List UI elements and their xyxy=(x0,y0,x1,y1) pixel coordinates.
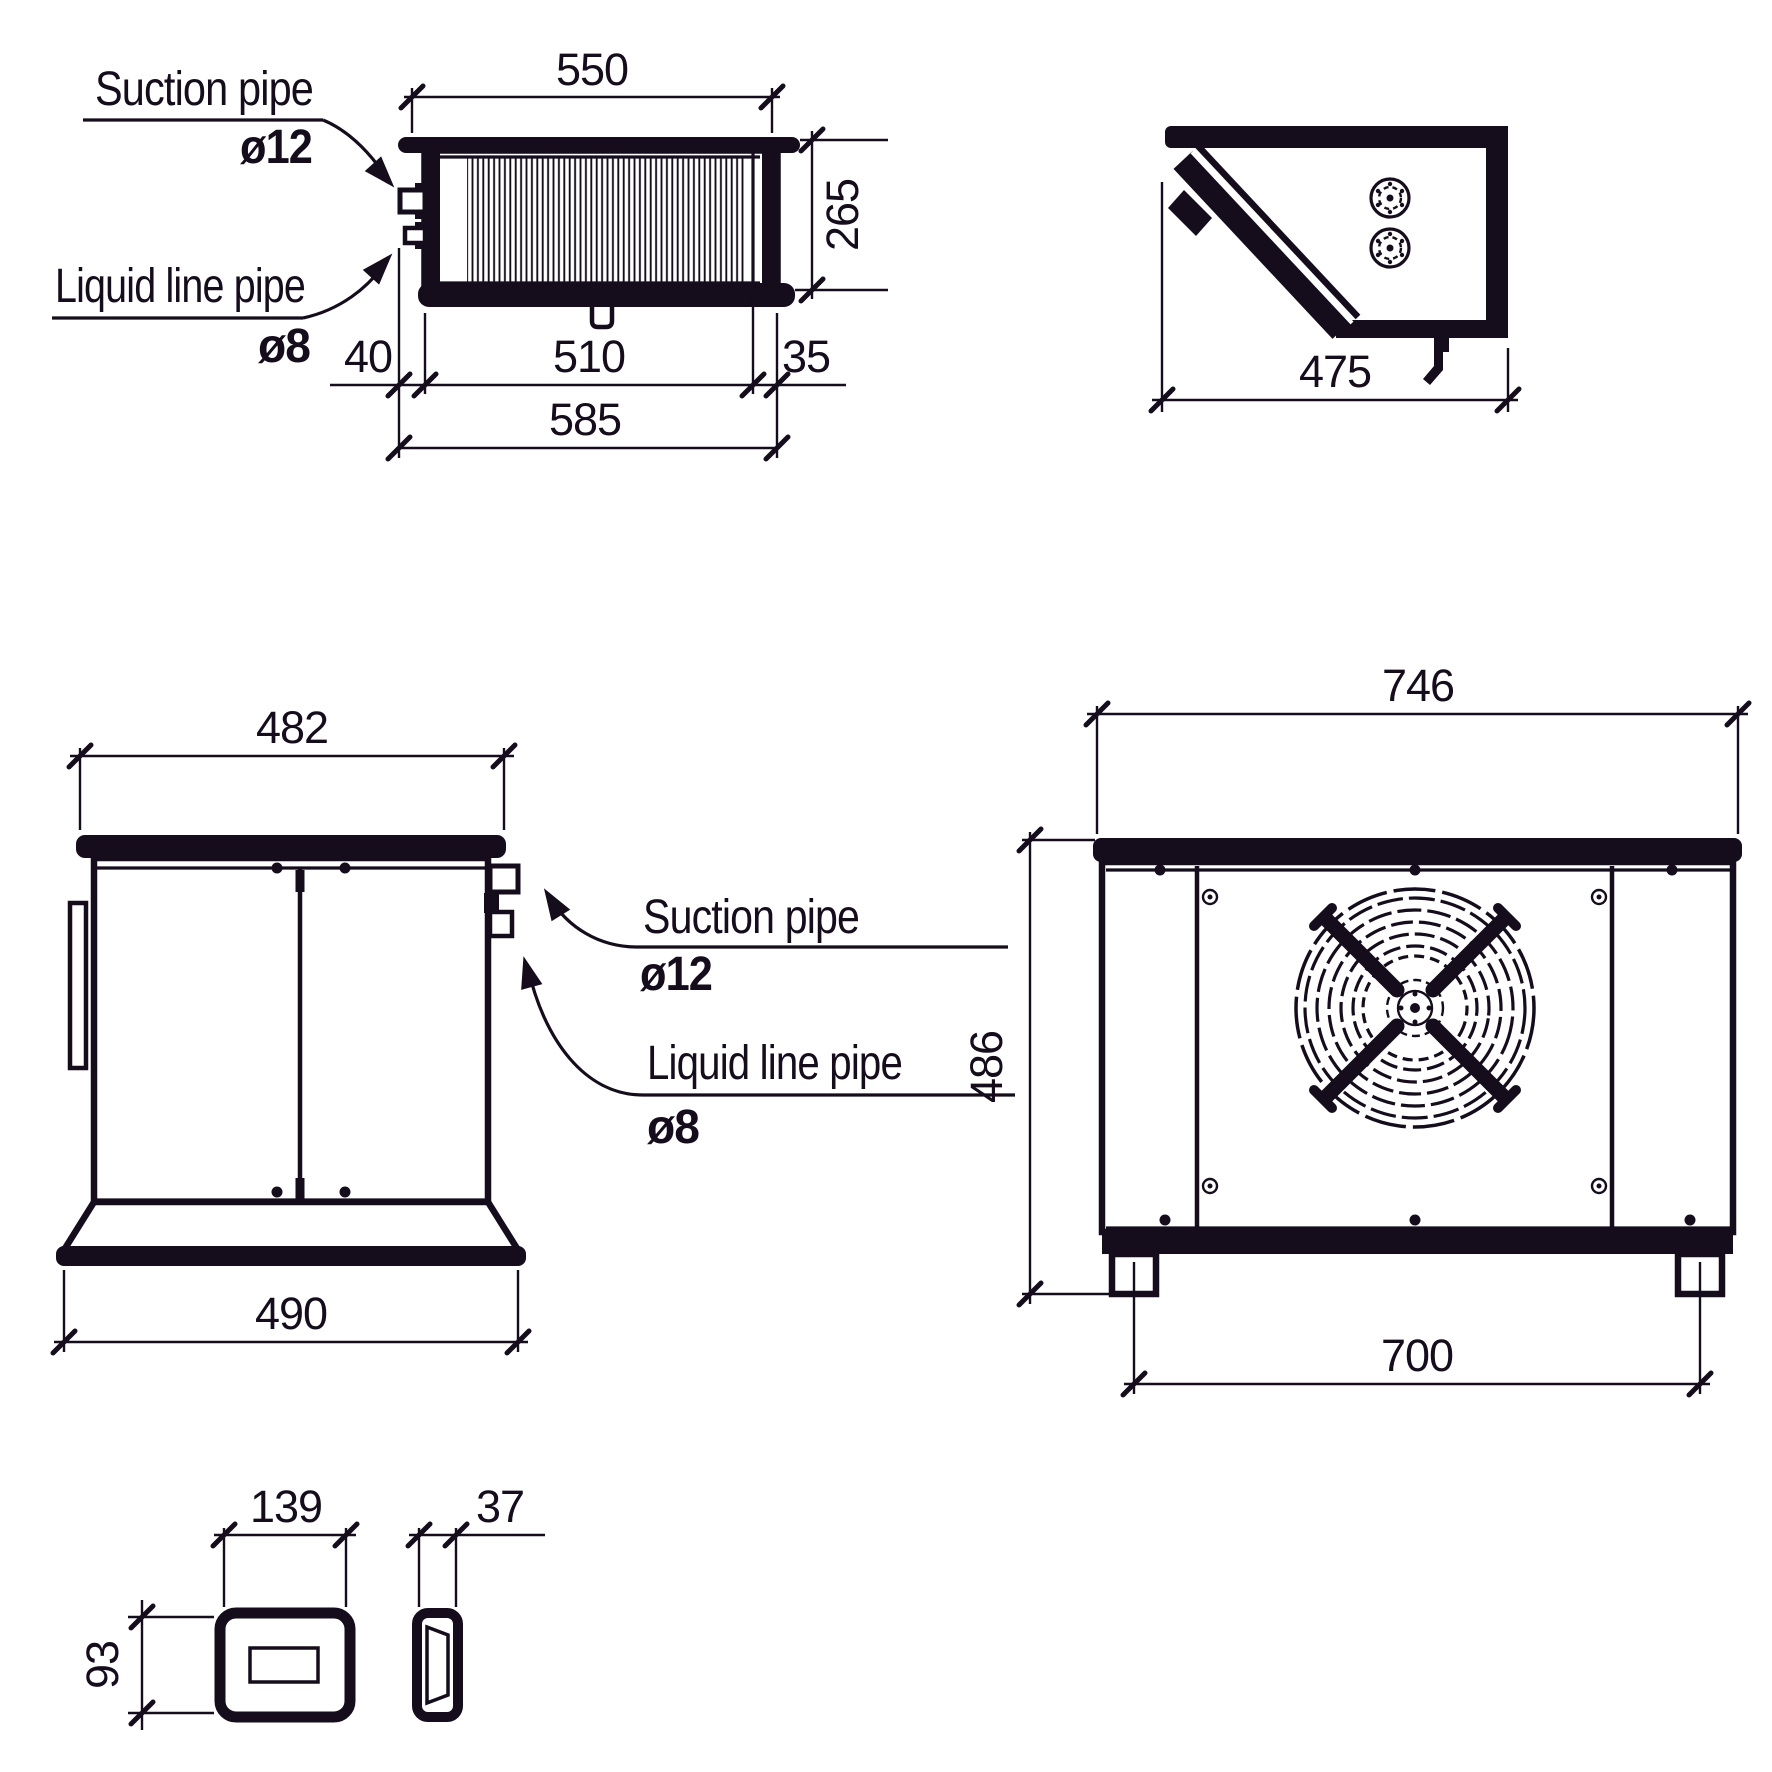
dim-510-label: 510 xyxy=(553,331,625,382)
controller-dim-93: 93 xyxy=(77,1600,214,1730)
controller-front-unit xyxy=(220,1613,350,1717)
dim-37-label: 37 xyxy=(476,1481,524,1532)
condenser-front-view: 746 486 700 xyxy=(961,660,1749,1395)
dim-482-label: 482 xyxy=(256,702,328,753)
cond-suction-label: Suction pipe xyxy=(643,891,859,944)
cond-side-suction-stub xyxy=(490,866,518,892)
dim-40-label: 40 xyxy=(344,331,392,382)
cond-dim-486: 486 xyxy=(961,829,1110,1305)
evap-dim-550: 550 xyxy=(401,44,783,133)
fan-guard-icon xyxy=(1296,889,1534,1127)
evap-fin-coil xyxy=(467,157,745,283)
cond-side-top-bar xyxy=(76,835,506,858)
cond-side-body xyxy=(94,858,488,1202)
cond-liquid-label: Liquid line pipe xyxy=(647,1037,902,1090)
dim-746-label: 746 xyxy=(1382,660,1454,711)
dim-475-label: 475 xyxy=(1299,346,1371,397)
dim-490-label: 490 xyxy=(255,1288,327,1339)
controller-side-outline xyxy=(417,1613,458,1717)
technical-drawing: Suction pipe ø12 Liquid line pipe ø8 550 xyxy=(0,0,1772,1772)
dim-93-label: 93 xyxy=(77,1641,128,1689)
dim-486-label: 486 xyxy=(961,1031,1012,1103)
evaporator-front-unit xyxy=(398,137,800,327)
evap-dim-265: 265 xyxy=(795,129,888,301)
evaporator-front-view: Suction pipe ø12 Liquid line pipe ø8 550 xyxy=(52,44,888,459)
evap-liquid-dia-label: ø8 xyxy=(258,320,310,373)
controller-side-unit xyxy=(417,1613,458,1717)
cond-side-callouts: Suction pipe ø12 Liquid line pipe ø8 xyxy=(513,882,1015,1154)
controller-display xyxy=(250,1648,318,1682)
condenser-side-unit xyxy=(56,835,526,1266)
evap-suction-stub xyxy=(400,190,425,212)
cond-side-base-plate xyxy=(56,1246,526,1266)
controller-views: 139 37 93 xyxy=(77,1481,545,1730)
evap-suction-arrow-icon xyxy=(365,156,403,195)
dim-585-label: 585 xyxy=(549,394,621,445)
dim-700-label: 700 xyxy=(1381,1330,1453,1381)
controller-front-outline xyxy=(220,1613,350,1717)
cond-side-liquid-stub xyxy=(490,912,512,936)
evap-side-coil-band xyxy=(1183,160,1342,330)
cond-dim-746: 746 xyxy=(1086,660,1749,834)
dim-35-label: 35 xyxy=(782,331,830,382)
condenser-front-unit xyxy=(1093,838,1742,1294)
cond-dim-482: 482 xyxy=(69,702,515,830)
cond-dim-700: 700 xyxy=(1123,1262,1711,1395)
evap-side-bolt-flange-bottom xyxy=(1371,229,1409,267)
evap-side-bottom xyxy=(1336,320,1508,338)
condenser-side-view: Suction pipe ø12 Liquid line pipe ø8 482… xyxy=(53,702,1015,1353)
evaporator-side-view: 475 xyxy=(1151,126,1519,412)
cond-suction-dia-label: ø12 xyxy=(640,948,712,1001)
evap-liquid-label: Liquid line pipe xyxy=(55,260,305,313)
cond-front-top-bar xyxy=(1093,838,1742,862)
drawing-page: Suction pipe ø12 Liquid line pipe ø8 550 xyxy=(0,0,1772,1772)
dim-550-label: 550 xyxy=(556,44,628,95)
evap-liquid-stub xyxy=(405,228,425,243)
evap-side-drain xyxy=(1423,338,1449,385)
cond-dim-490: 490 xyxy=(53,1270,529,1353)
evap-side-top xyxy=(1165,126,1508,148)
cond-front-bottom-rail xyxy=(1102,1232,1733,1254)
evap-drain-stub xyxy=(592,307,612,327)
cond-side-bracket xyxy=(70,903,86,1068)
controller-dim-37: 37 xyxy=(408,1481,545,1607)
evap-bottom-flange xyxy=(418,283,795,307)
evap-callouts: Suction pipe ø12 Liquid line pipe ø8 xyxy=(52,63,403,373)
evap-side-bolt-flange-top xyxy=(1371,179,1409,217)
dim-265-label: 265 xyxy=(817,179,868,251)
cond-liquid-leader xyxy=(528,968,643,1095)
cond-liquid-dia-label: ø8 xyxy=(647,1101,699,1154)
evap-liquid-arrow-icon xyxy=(363,246,401,285)
controller-dim-139: 139 xyxy=(213,1481,357,1607)
cond-liquid-arrow-icon xyxy=(513,953,543,990)
evap-suction-dia-label: ø12 xyxy=(240,121,312,174)
evap-side-right xyxy=(1486,126,1508,338)
dim-139-label: 139 xyxy=(250,1481,322,1532)
controller-side-recess xyxy=(427,1627,448,1703)
evap-suction-label: Suction pipe xyxy=(95,63,313,116)
